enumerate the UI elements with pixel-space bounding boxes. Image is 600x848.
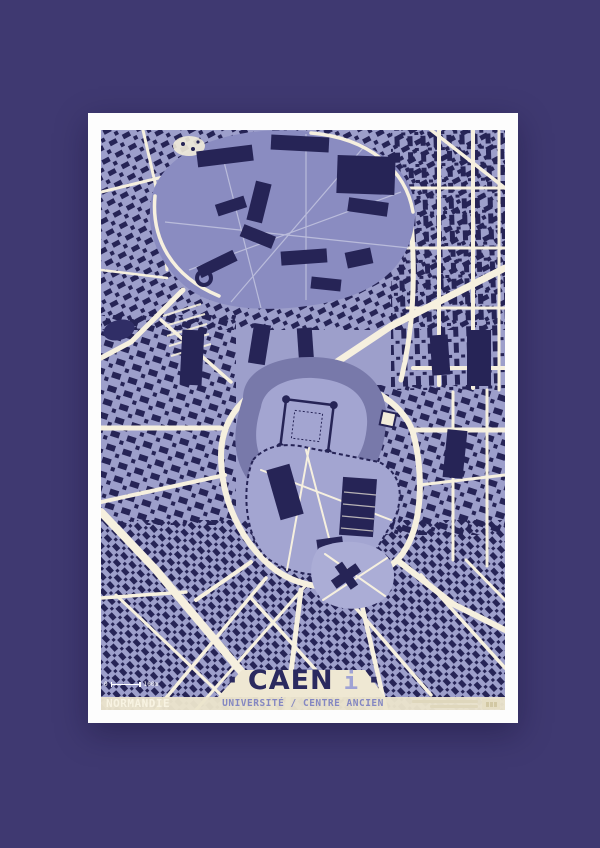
scale-start-label: 0 bbox=[104, 681, 108, 688]
scale-line bbox=[111, 684, 141, 686]
castle-gate-tower bbox=[380, 411, 397, 428]
map-poster: 0 100m · CAEN i · UNIVERSITÉ / CENTRE AN… bbox=[88, 113, 518, 723]
city-map-graphic bbox=[101, 130, 505, 710]
church-square bbox=[311, 542, 394, 609]
scale-bar: 0 100m bbox=[104, 681, 158, 688]
credits-text bbox=[412, 700, 478, 708]
publisher-logo bbox=[482, 699, 500, 709]
scale-end-label: 100m bbox=[144, 681, 158, 688]
chateau-de-caen bbox=[235, 357, 399, 575]
map-area: 0 100m · CAEN i · UNIVERSITÉ / CENTRE AN… bbox=[101, 130, 505, 710]
page-background: { "poster": { "title": "CAEN", "title_do… bbox=[0, 0, 600, 848]
region-label: NORMANDIE bbox=[106, 697, 170, 710]
